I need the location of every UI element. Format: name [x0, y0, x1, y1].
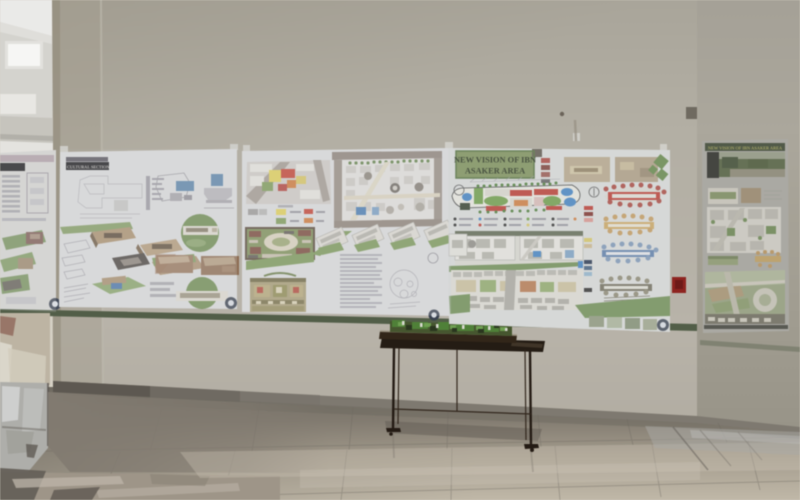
- svg-text:CULTURAL SECTION: CULTURAL SECTION: [67, 164, 110, 169]
- svg-text:ASAKER AREA: ASAKER AREA: [465, 167, 525, 176]
- svg-text:NEW VISION OF IBN ASAKER AREA: NEW VISION OF IBN ASAKER AREA: [708, 146, 783, 151]
- svg-text:NEW VISION OF IBN: NEW VISION OF IBN: [454, 156, 536, 165]
